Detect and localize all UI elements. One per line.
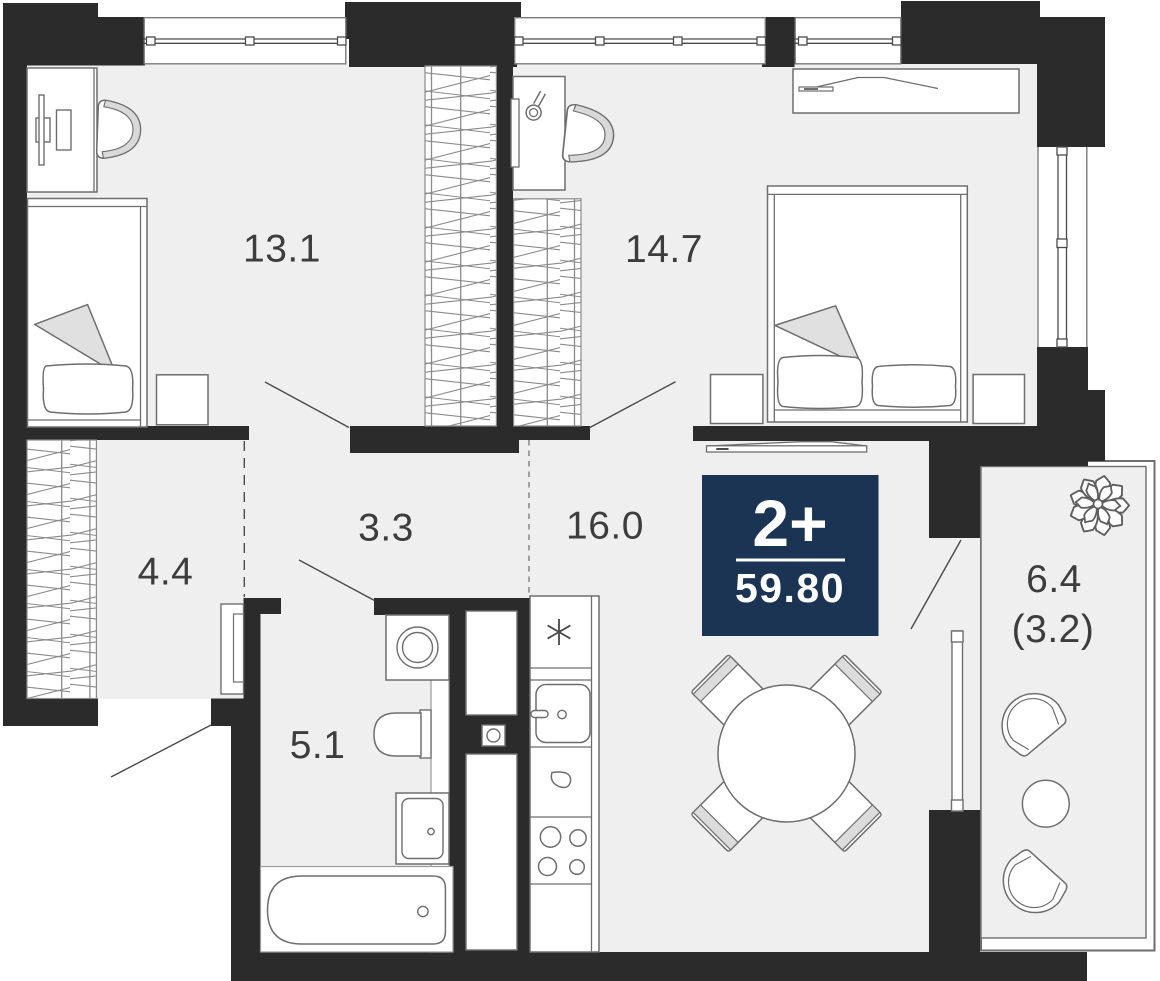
svg-text:59.80: 59.80 xyxy=(735,565,845,611)
svg-text:4.4: 4.4 xyxy=(138,551,194,594)
svg-text:16.0: 16.0 xyxy=(566,505,644,548)
svg-text:2+: 2+ xyxy=(752,486,827,560)
svg-text:14.7: 14.7 xyxy=(625,228,703,271)
svg-text:6.4: 6.4 xyxy=(1026,558,1082,601)
svg-text:(3.2): (3.2) xyxy=(1012,608,1095,651)
svg-text:13.1: 13.1 xyxy=(243,228,321,271)
svg-text:3.3: 3.3 xyxy=(358,507,414,550)
svg-text:5.1: 5.1 xyxy=(290,724,346,767)
